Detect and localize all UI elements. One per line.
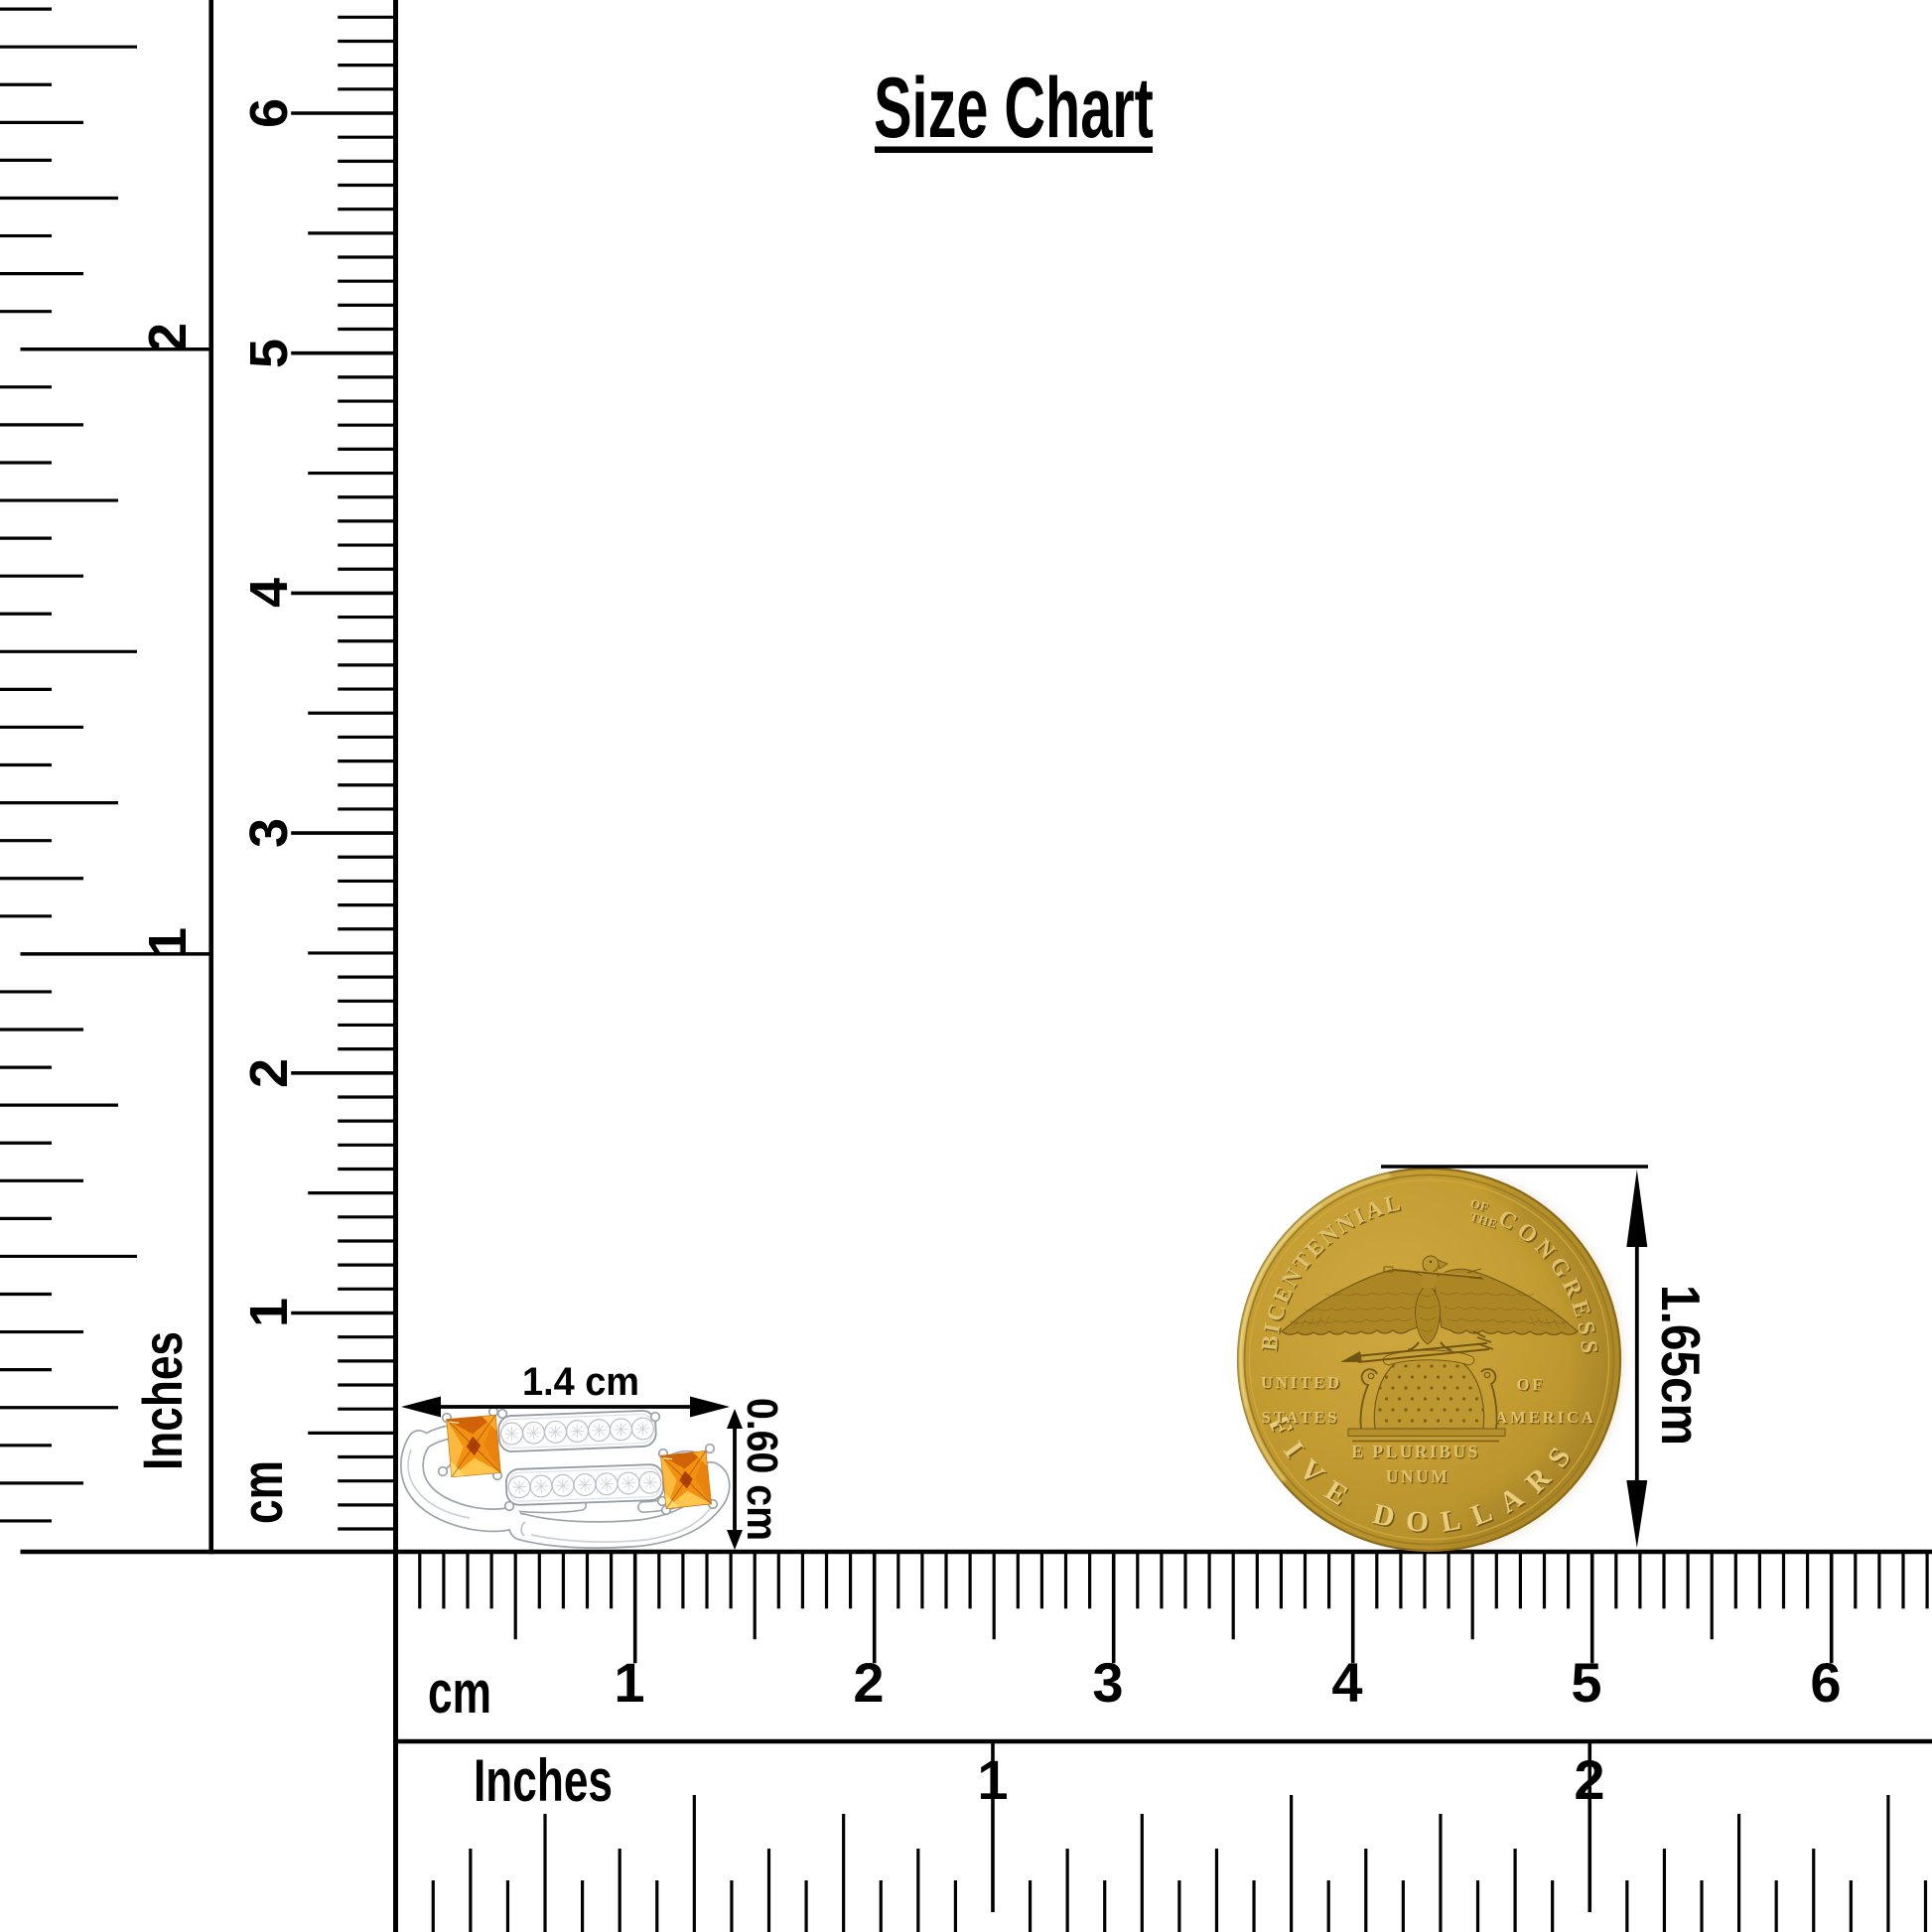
svg-text:5: 5: [1571, 1651, 1601, 1714]
svg-text:4: 4: [239, 578, 299, 608]
svg-text:6: 6: [239, 98, 299, 128]
svg-text:OF: OF: [1517, 1375, 1546, 1394]
svg-text:1: 1: [239, 1298, 299, 1327]
svg-text:UNUM: UNUM: [1386, 1466, 1449, 1486]
svg-text:1: 1: [614, 1651, 644, 1714]
svg-text:cm: cm: [230, 1460, 295, 1524]
svg-text:2: 2: [1574, 1748, 1604, 1811]
svg-text:AMERICA: AMERICA: [1495, 1408, 1596, 1427]
svg-text:2: 2: [138, 323, 198, 352]
svg-text:1: 1: [977, 1748, 1008, 1811]
svg-text:E PLURIBUS: E PLURIBUS: [1351, 1442, 1480, 1461]
svg-text:3: 3: [1092, 1651, 1123, 1714]
svg-text:cm: cm: [428, 1659, 491, 1725]
svg-text:Size Chart: Size Chart: [874, 60, 1154, 155]
svg-text:4: 4: [1331, 1651, 1362, 1714]
svg-text:2: 2: [853, 1651, 884, 1714]
svg-text:Inches: Inches: [474, 1747, 613, 1814]
svg-text:5: 5: [239, 339, 299, 368]
svg-text:3: 3: [239, 818, 299, 848]
svg-text:0.60 cm: 0.60 cm: [738, 1398, 786, 1541]
svg-text:1: 1: [138, 927, 198, 957]
svg-text:STATES: STATES: [1262, 1408, 1340, 1427]
svg-text:UNITED: UNITED: [1261, 1373, 1342, 1392]
svg-text:1.65cm: 1.65cm: [1650, 1285, 1712, 1446]
svg-text:1.4 cm: 1.4 cm: [522, 1360, 639, 1404]
svg-text:2: 2: [239, 1058, 299, 1088]
svg-text:Inches: Inches: [131, 1331, 194, 1470]
svg-text:6: 6: [1810, 1651, 1841, 1714]
